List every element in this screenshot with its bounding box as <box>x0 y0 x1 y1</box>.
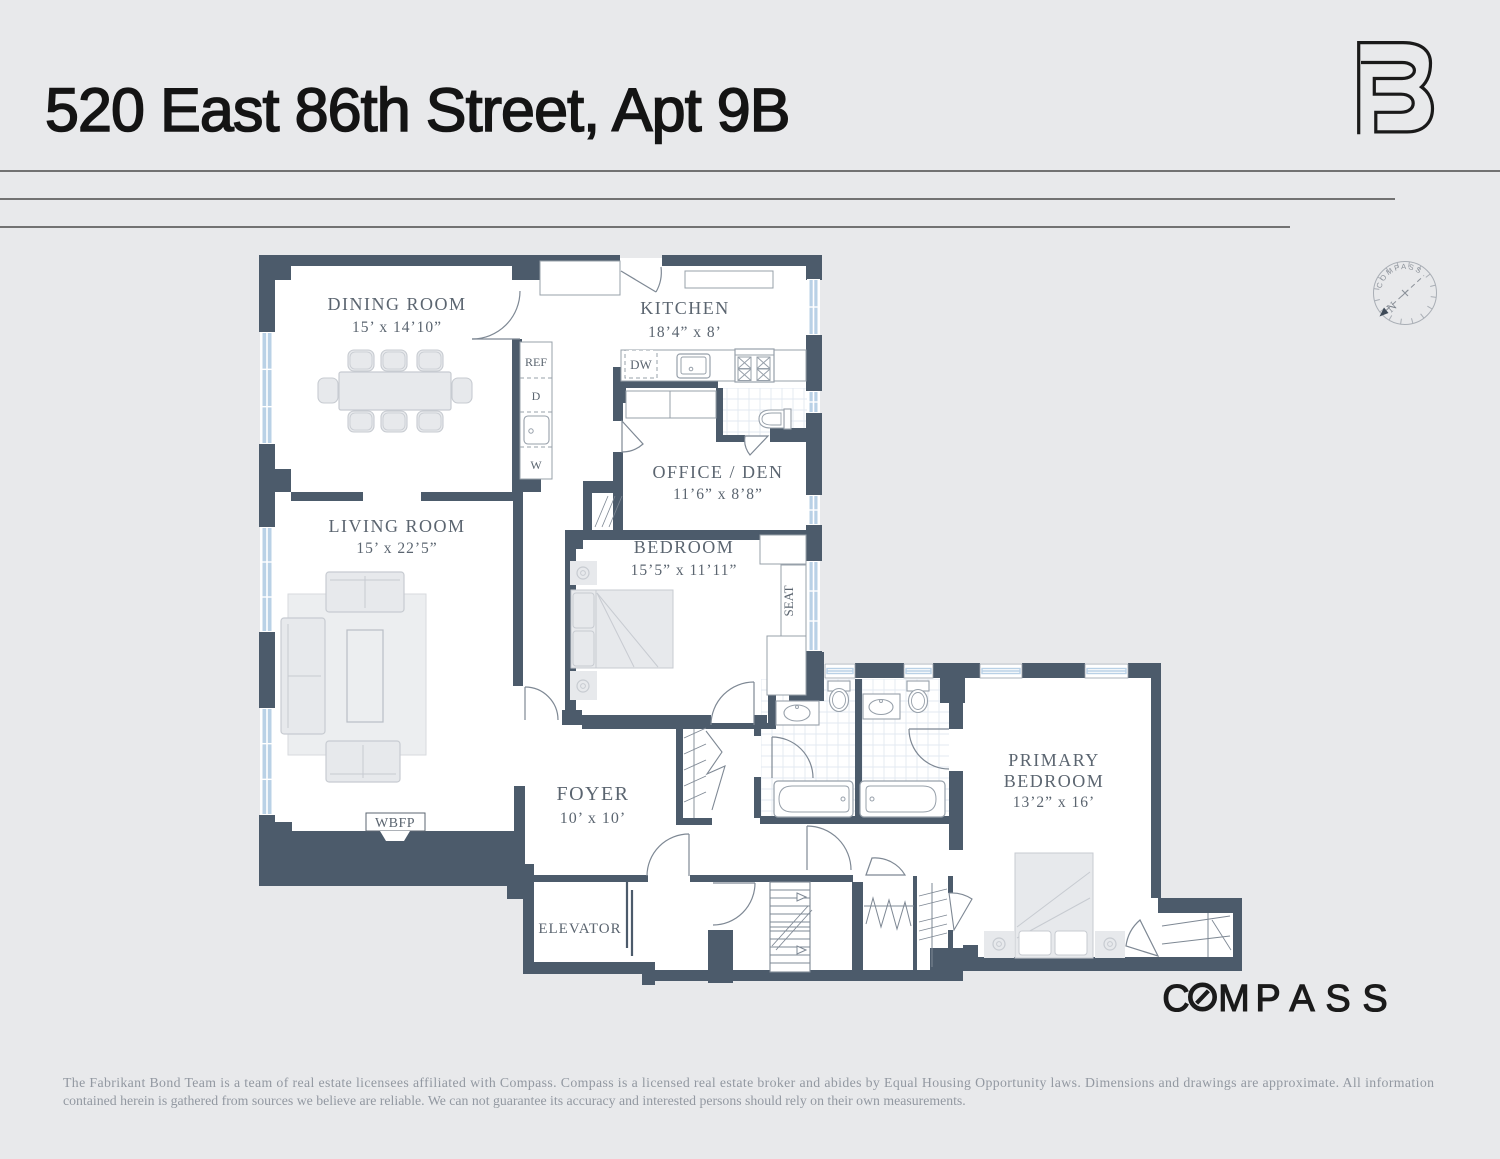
svg-text:KITCHEN: KITCHEN <box>640 298 730 318</box>
svg-text:11’6” x 8’8”: 11’6” x 8’8” <box>673 486 763 503</box>
svg-text:13’2” x 16’: 13’2” x 16’ <box>1013 794 1095 811</box>
svg-text:W: W <box>530 458 542 472</box>
svg-text:SEAT: SEAT <box>781 585 796 616</box>
svg-text:DINING ROOM: DINING ROOM <box>328 294 467 314</box>
svg-text:P: P <box>1255 978 1280 1020</box>
svg-text:C: C <box>1162 978 1189 1020</box>
svg-text:ELEVATOR: ELEVATOR <box>538 921 621 937</box>
svg-text:15’ x 22’5”: 15’ x 22’5” <box>356 540 437 557</box>
svg-text:520 East 86th Street, Apt 9B: 520 East 86th Street, Apt 9B <box>45 76 790 144</box>
svg-text:FOYER: FOYER <box>556 783 629 805</box>
svg-text:S: S <box>1325 978 1350 1020</box>
svg-text:contained herein is gathered f: contained herein is gathered from source… <box>63 1093 966 1108</box>
svg-text:The Fabrikant Bond Team is a t: The Fabrikant Bond Team is a team of rea… <box>63 1075 1434 1090</box>
svg-text:LIVING ROOM: LIVING ROOM <box>329 516 466 536</box>
svg-text:15’5” x 11’11”: 15’5” x 11’11” <box>631 562 738 579</box>
svg-text:PRIMARY: PRIMARY <box>1008 750 1100 770</box>
svg-text:REF: REF <box>525 355 547 369</box>
svg-text:M: M <box>1218 978 1250 1020</box>
svg-text:DW: DW <box>630 357 652 372</box>
svg-text:18’4” x 8’: 18’4” x 8’ <box>648 324 722 341</box>
svg-text:OFFICE / DEN: OFFICE / DEN <box>652 462 783 482</box>
svg-text:WBFP: WBFP <box>375 816 415 831</box>
svg-text:BEDROOM: BEDROOM <box>1004 771 1105 791</box>
svg-text:A: A <box>1289 978 1315 1020</box>
svg-text:15’ x 14’10”: 15’ x 14’10” <box>352 319 442 336</box>
svg-text:10’ x 10’: 10’ x 10’ <box>560 810 626 827</box>
svg-text:BEDROOM: BEDROOM <box>634 537 735 557</box>
svg-text:S: S <box>1362 978 1387 1020</box>
svg-text:D: D <box>532 389 541 403</box>
